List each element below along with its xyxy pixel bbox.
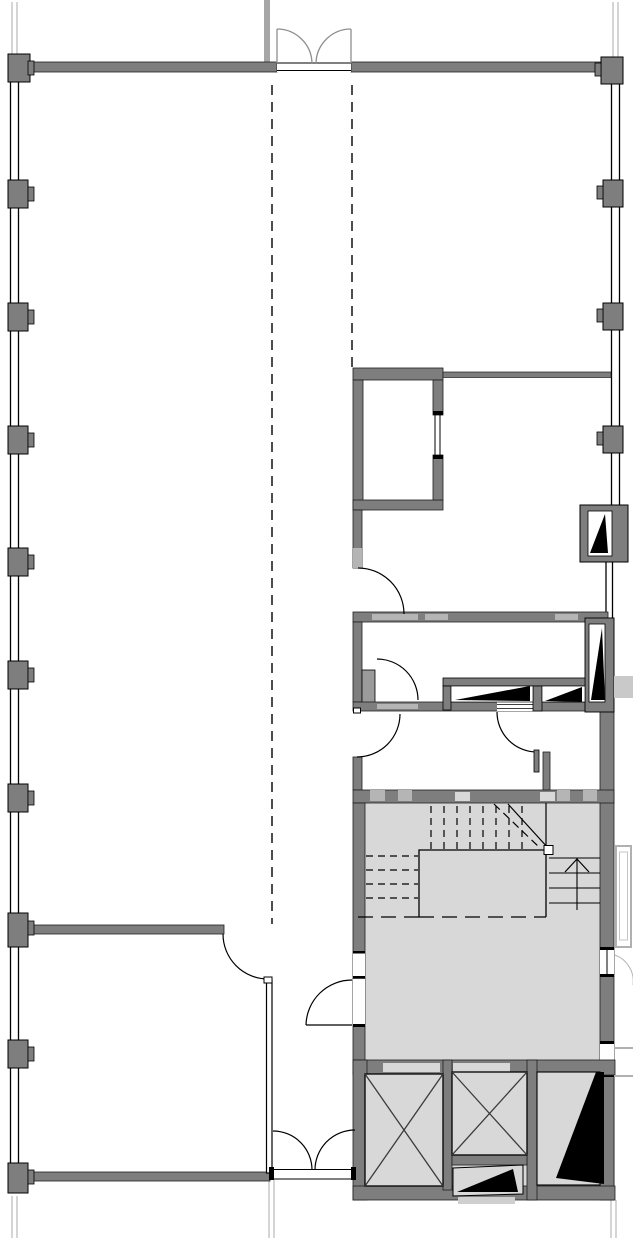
stair-enclosure-18 (600, 1041, 614, 1044)
stair-enclosure-1 (370, 790, 385, 801)
column (8, 54, 30, 82)
column (603, 426, 623, 453)
shaft-room-wall-right-lower (433, 455, 443, 500)
column (603, 180, 623, 207)
stair-enclosure-9 (353, 951, 365, 954)
counter-top-bar (443, 678, 585, 686)
interior-walls-15 (372, 614, 418, 620)
column (603, 303, 623, 330)
interior-walls-21 (497, 702, 537, 711)
stair-enclosure-5 (557, 790, 570, 801)
column (8, 303, 28, 331)
doors-19 (269, 1167, 274, 1180)
room-divider-wall (30, 925, 224, 934)
duct-shafts-7 (443, 686, 451, 710)
stair-enclosure-6 (583, 790, 597, 801)
door-jamb-cap (264, 977, 272, 983)
doors-20 (351, 1167, 356, 1180)
stair-wall-top (353, 790, 614, 803)
door-leaf (534, 750, 539, 772)
column (8, 661, 28, 689)
structural-columns-1 (28, 61, 34, 75)
shaft-room-wall-bottom (353, 500, 443, 510)
column (8, 426, 28, 454)
stair-enclosure-4 (540, 792, 555, 801)
south-wall-west (30, 1172, 270, 1181)
wall-below-door (353, 757, 362, 790)
north-wall-east (351, 62, 603, 72)
shaft2-bottom-wall (452, 1155, 527, 1165)
balcony-frame (616, 846, 631, 947)
facade-tab (614, 676, 633, 698)
column (8, 913, 28, 947)
interior-walls-10 (433, 455, 443, 459)
shaft-room-wall-left (353, 380, 363, 510)
column (8, 1040, 28, 1068)
structural-columns-11 (28, 668, 34, 682)
vestibule-wall-left (353, 622, 362, 702)
structural-columns-23 (597, 186, 603, 199)
elevator-core-2 (453, 1063, 510, 1072)
interior-walls-24 (377, 704, 418, 709)
stair-enclosure-8 (353, 953, 365, 978)
structural-columns-19 (28, 1170, 34, 1184)
stair-enclosure-2 (398, 790, 412, 801)
structural-columns-15 (28, 921, 34, 935)
structural-columns-21 (595, 63, 601, 76)
structural-columns-17 (28, 1047, 34, 1061)
stair-enclosure-10 (353, 976, 365, 979)
structural-columns-25 (597, 309, 603, 322)
column (8, 180, 28, 208)
duct-shafts-8 (533, 686, 542, 711)
landing-notch (544, 846, 553, 855)
structural-columns-5 (28, 310, 34, 324)
interior-walls-13 (353, 548, 362, 568)
thin-partition-wall (267, 980, 273, 1173)
interior-walls-16 (425, 614, 448, 620)
elevator-core (353, 1060, 615, 1204)
shaft-room-wall-right-upper (433, 380, 443, 415)
core-divider-2 (527, 1060, 537, 1200)
elevator-core-1 (383, 1063, 440, 1072)
column (8, 1163, 28, 1193)
structural-columns-13 (28, 791, 34, 805)
structural-columns-7 (28, 433, 34, 447)
column (8, 548, 28, 576)
thin-wall-east (443, 372, 611, 378)
structural-columns-9 (28, 555, 34, 569)
interior-walls-9 (433, 411, 443, 415)
column (8, 784, 28, 812)
stair-enclosure-3 (455, 792, 470, 801)
column (601, 57, 623, 84)
floor-plan (0, 0, 633, 1240)
north-wall-west (30, 62, 277, 72)
stair-enclosure-14 (600, 947, 614, 950)
interior-walls-17 (555, 614, 578, 620)
stair-enclosure-12 (353, 1024, 365, 1027)
floor-plan-canvas (0, 0, 633, 1240)
mullion-bar-top (264, 0, 270, 63)
lobby-door-gap (353, 979, 365, 1025)
elevator-core-18 (458, 1197, 515, 1204)
wc-fixture (362, 670, 375, 707)
wall-stub-cap (354, 708, 361, 713)
core-divider-1 (443, 1060, 452, 1190)
structural-columns-27 (597, 432, 603, 445)
structural-columns-3 (28, 187, 34, 201)
wall-stub-mid (543, 752, 550, 790)
shaft-room-wall-top (353, 368, 443, 380)
